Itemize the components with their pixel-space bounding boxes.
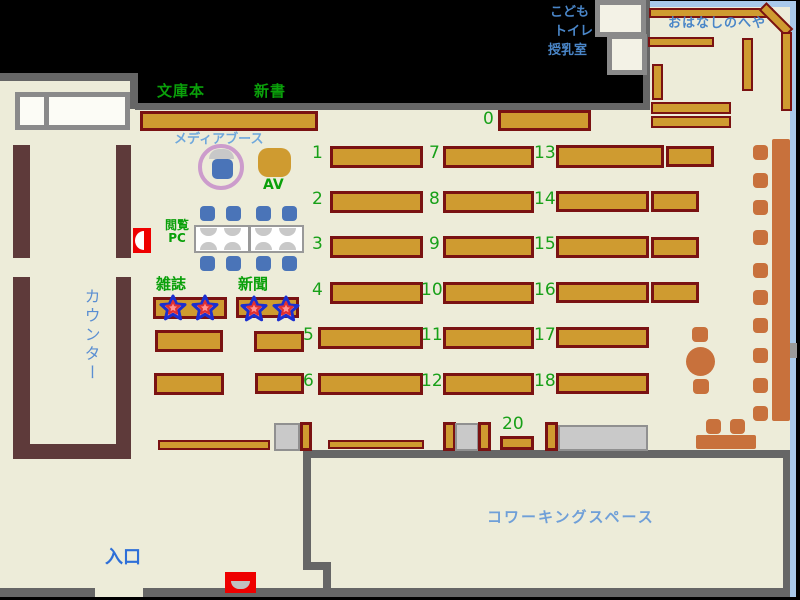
shelf-number-8: 8 (429, 190, 440, 209)
stool (753, 173, 768, 188)
shelf-number-5: 5 (303, 326, 314, 345)
wall-top-left (0, 73, 138, 81)
bookshelf-16-ext (651, 282, 699, 303)
shelf-number-14: 14 (534, 190, 556, 209)
label-toilet: トイレ (554, 25, 593, 39)
label-paperbacks: 文庫本 (157, 83, 205, 100)
chair (200, 256, 215, 271)
bookshelf-row5-a (155, 330, 223, 352)
pc-seat-icon (224, 242, 241, 250)
bookshelf-row5-b (254, 331, 304, 352)
bookshelf-10 (443, 282, 534, 304)
stool (753, 348, 768, 363)
wall-top-main (135, 103, 649, 110)
shelf-number-12: 12 (421, 372, 443, 391)
bookshelf-1 (330, 146, 423, 168)
chair (200, 206, 215, 221)
library-floor-map: 文庫本 新書 メディアブース AV 閲覧 PC 雑誌 新聞 カウンター 入口 こ… (0, 0, 800, 600)
label-newspapers: 新聞 (238, 276, 268, 293)
label-new-books: 新書 (254, 83, 286, 100)
label-magazines: 雑誌 (156, 276, 186, 293)
bookshelf-17 (556, 327, 649, 348)
star-icon (271, 294, 301, 324)
bookshelf-2 (330, 191, 423, 213)
end-shelf-3 (478, 422, 491, 451)
shelf-number-17: 17 (534, 326, 556, 345)
bookshelf-14 (556, 191, 649, 212)
story-shelf-vert-mid (742, 38, 753, 91)
entrance-marker (225, 572, 256, 593)
wall-coworking-right (783, 456, 790, 597)
bookshelf-20 (500, 436, 534, 450)
chair (256, 206, 271, 221)
label-story-room: おはなしのへや (668, 17, 766, 31)
label-pc: PC (168, 231, 186, 245)
locker-2 (455, 423, 479, 451)
label-entrance: 入口 (105, 548, 141, 568)
round-table (686, 347, 715, 376)
entrance-slot-icon (231, 581, 250, 589)
bookshelf-16 (556, 282, 649, 303)
counter-u-left (13, 277, 30, 459)
stool (693, 379, 709, 394)
label-media-booth: メディアブース (174, 133, 263, 147)
shelf-number-0: 0 (483, 110, 494, 129)
wall-coworking-top (303, 450, 790, 458)
shelf-number-3: 3 (312, 235, 323, 254)
bookshelf-4 (330, 282, 423, 304)
shelf-number-18: 18 (534, 372, 556, 391)
locker-1 (274, 423, 300, 451)
wall-coworking-left (303, 450, 311, 568)
shelf-number-1: 1 (312, 144, 323, 163)
shelf-number-7: 7 (429, 144, 440, 163)
star-icon (239, 294, 269, 324)
door-right-wall (789, 343, 797, 358)
bookshelf-12 (443, 373, 534, 395)
shelf-number-6: 6 (303, 372, 314, 391)
bookshelf-6 (318, 373, 423, 395)
label-nursing-room: 授乳室 (548, 44, 587, 58)
pc-seat-icon (255, 242, 272, 250)
stool (753, 230, 768, 245)
locker-3 (558, 425, 648, 451)
office-room (15, 92, 130, 130)
shelf-number-15: 15 (534, 235, 556, 254)
stool (706, 419, 721, 434)
label-counter: カウンター (82, 288, 100, 383)
kids-toilet-room (595, 0, 646, 37)
chair (226, 256, 241, 271)
label-coworking: コワーキングスペース (487, 509, 655, 526)
shelf-number-16: 16 (534, 281, 556, 300)
wall-story-room-top (648, 1, 794, 7)
bookshelf-paperback (140, 111, 318, 131)
av-table (258, 148, 291, 177)
stool (753, 145, 768, 160)
stool (753, 378, 768, 393)
backdrop-top-left (0, 0, 140, 78)
pc-seat-icon (200, 242, 217, 250)
book-return-marker (133, 228, 151, 253)
chair (226, 206, 241, 221)
reading-counter (772, 139, 790, 421)
stool (753, 200, 768, 215)
bookshelf-11 (443, 327, 534, 349)
bench (696, 435, 756, 449)
stool (692, 327, 708, 342)
chair (256, 256, 271, 271)
counter-upper-left (13, 145, 30, 258)
counter-upper-right (116, 145, 131, 258)
story-shelf-right (781, 32, 792, 111)
bookshelf-14-ext (651, 191, 699, 212)
media-booth-chair (212, 159, 233, 179)
label-viewing: 閲覧 (165, 218, 189, 232)
end-shelf-4 (545, 422, 558, 451)
shelf-number-9: 9 (429, 235, 440, 254)
bookshelf-18 (556, 373, 649, 394)
bookshelf-9 (443, 236, 534, 258)
stool (730, 419, 745, 434)
stool (753, 263, 768, 278)
shelf-number-13: 13 (534, 144, 556, 163)
story-shelf-2 (648, 37, 714, 47)
counter-u-bottom (13, 444, 131, 459)
stool (753, 290, 768, 305)
bookshelf-0 (498, 110, 591, 131)
bookshelf-row6-a (154, 373, 224, 395)
story-shelf-low-1 (651, 102, 731, 114)
bookshelf-13-ext (666, 146, 714, 167)
book-return-slot-icon (135, 231, 144, 250)
shelf-number-2: 2 (312, 190, 323, 209)
low-shelf-left (158, 440, 270, 450)
bookshelf-row6-b (255, 373, 304, 394)
shelf-number-4: 4 (312, 281, 323, 300)
shelf-number-10: 10 (421, 281, 443, 300)
shelf-number-11: 11 (421, 326, 443, 345)
counter-u-right (116, 277, 131, 459)
office-divider (44, 95, 49, 127)
stool (753, 318, 768, 333)
low-shelf-mid (328, 440, 424, 449)
pc-seat-icon (279, 242, 296, 250)
nursing-room (607, 34, 647, 75)
chair (282, 206, 297, 221)
monitor-arc-icon (209, 149, 234, 159)
star-icon (158, 293, 188, 323)
label-av: AV (263, 178, 284, 193)
label-kids: こども (550, 6, 589, 20)
bookshelf-7 (443, 146, 534, 168)
shelf-number-20: 20 (502, 415, 524, 434)
bookshelf-13 (556, 145, 664, 168)
wall-bottom-left (0, 588, 95, 597)
star-icon (190, 293, 220, 323)
bookshelf-5 (318, 327, 423, 349)
bookshelf-8 (443, 191, 534, 213)
bookshelf-3 (330, 236, 423, 258)
story-shelf-low-2 (651, 116, 731, 128)
frame-right (796, 0, 800, 600)
bookshelf-15-ext (651, 237, 699, 258)
stool (753, 406, 768, 421)
chair (282, 256, 297, 271)
label-viewing-pc: 閲覧 PC (161, 219, 193, 245)
end-shelf-1 (300, 422, 312, 451)
bookshelf-15 (556, 236, 649, 258)
story-shelf-vert-left (652, 64, 663, 100)
